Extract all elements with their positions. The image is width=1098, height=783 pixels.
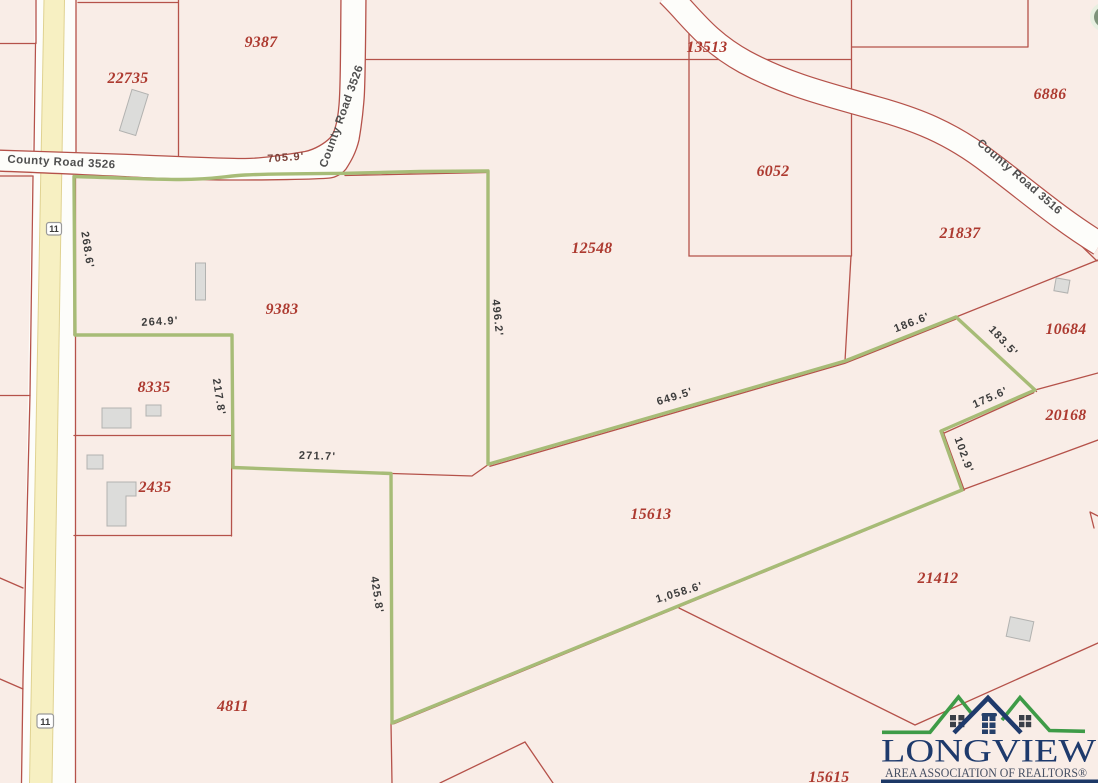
svg-text:271.7': 271.7' [299,450,337,463]
svg-text:20168: 20168 [1045,407,1087,424]
svg-text:10684: 10684 [1046,321,1087,338]
svg-text:LONGVIEW: LONGVIEW [881,734,1097,770]
svg-text:8335: 8335 [138,379,171,396]
svg-text:21837: 21837 [939,225,982,242]
svg-text:11: 11 [49,224,59,234]
svg-text:11: 11 [40,717,51,728]
svg-text:9383: 9383 [266,301,299,318]
svg-text:9387: 9387 [245,34,279,51]
svg-text:6052: 6052 [757,163,790,180]
svg-text:15613: 15613 [631,506,672,523]
svg-text:AREA ASSOCIATION OF REALTORS®: AREA ASSOCIATION OF REALTORS® [885,766,1087,780]
svg-text:12548: 12548 [572,240,613,257]
svg-text:2435: 2435 [138,479,172,496]
svg-text:22735: 22735 [107,70,149,87]
svg-text:264.9': 264.9' [141,315,179,329]
svg-text:4811: 4811 [216,698,249,715]
svg-text:6886: 6886 [1034,86,1067,103]
svg-text:13513: 13513 [687,39,728,56]
svg-text:21412: 21412 [917,570,959,587]
svg-text:15615: 15615 [809,769,850,783]
